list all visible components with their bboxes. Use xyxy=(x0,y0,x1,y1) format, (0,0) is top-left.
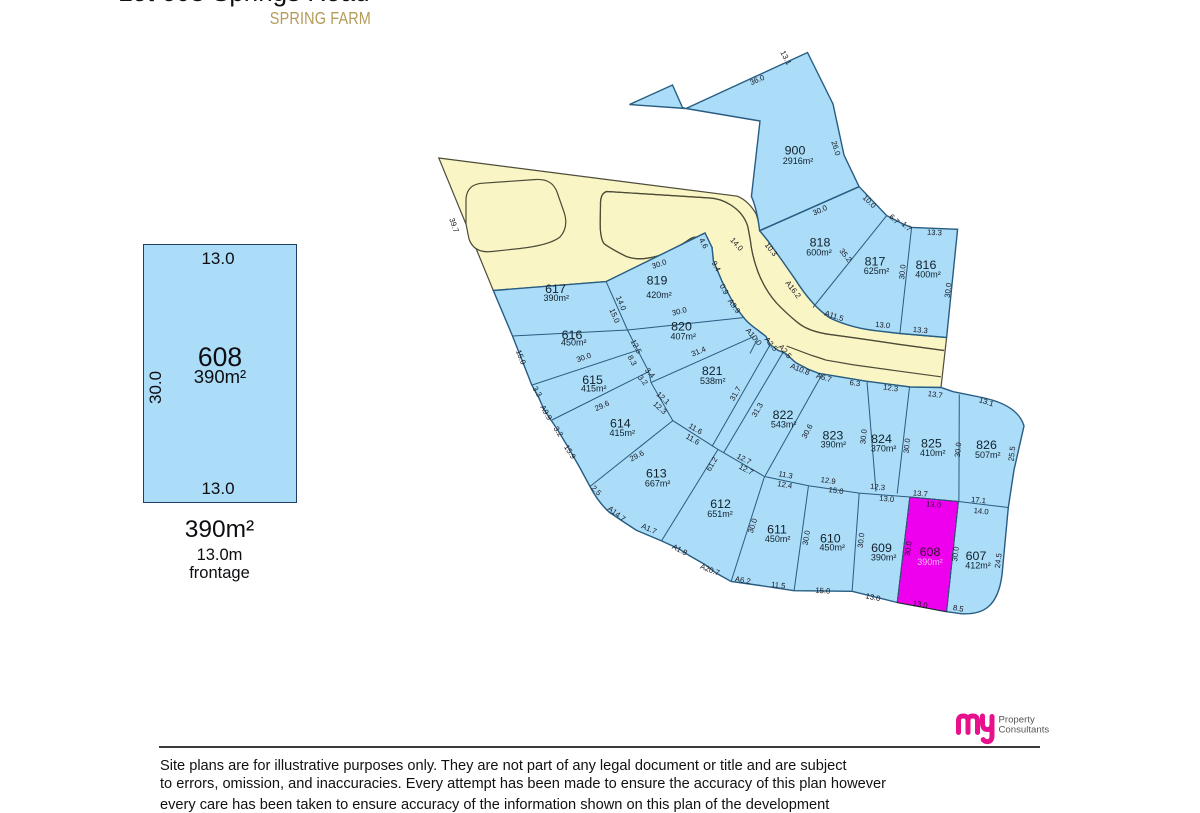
svg-text:625m²: 625m² xyxy=(864,266,890,276)
svg-text:8.5: 8.5 xyxy=(952,603,964,614)
svg-text:30.0: 30.0 xyxy=(897,264,908,280)
svg-text:11.5: 11.5 xyxy=(771,580,786,590)
svg-text:24.5: 24.5 xyxy=(993,553,1004,569)
svg-text:450m²: 450m² xyxy=(819,543,845,553)
svg-text:400m²: 400m² xyxy=(915,270,941,280)
svg-text:30.0: 30.0 xyxy=(858,429,869,445)
svg-text:543m²: 543m² xyxy=(771,420,797,430)
svg-text:450m²: 450m² xyxy=(561,338,587,348)
svg-text:390m²: 390m² xyxy=(871,553,897,563)
svg-text:407m²: 407m² xyxy=(671,332,697,342)
svg-text:2916m²: 2916m² xyxy=(783,156,814,166)
svg-text:12.3: 12.3 xyxy=(870,482,886,493)
svg-text:667m²: 667m² xyxy=(645,479,671,489)
svg-text:14.0: 14.0 xyxy=(973,506,989,516)
svg-text:450m²: 450m² xyxy=(765,534,791,544)
svg-text:819: 819 xyxy=(647,274,668,288)
svg-text:13.0: 13.0 xyxy=(926,499,942,509)
svg-text:6.3: 6.3 xyxy=(849,378,861,388)
svg-text:410m²: 410m² xyxy=(920,448,946,458)
svg-text:30.0: 30.0 xyxy=(953,442,964,458)
svg-text:30.0: 30.0 xyxy=(943,282,954,298)
svg-text:415m²: 415m² xyxy=(609,428,635,438)
svg-text:390m²: 390m² xyxy=(917,557,943,567)
svg-text:538m²: 538m² xyxy=(700,376,726,386)
svg-text:651m²: 651m² xyxy=(707,509,733,519)
svg-text:A6.2: A6.2 xyxy=(734,574,751,586)
svg-text:39.7: 39.7 xyxy=(447,217,461,234)
svg-text:30.0: 30.0 xyxy=(902,438,913,454)
svg-text:600m²: 600m² xyxy=(806,248,832,258)
svg-text:30.0: 30.0 xyxy=(856,532,867,548)
svg-text:Consultants: Consultants xyxy=(999,725,1050,736)
svg-text:13.3: 13.3 xyxy=(927,228,942,238)
svg-text:25.5: 25.5 xyxy=(1007,446,1018,462)
svg-text:390m²: 390m² xyxy=(543,293,569,303)
svg-text:420m²: 420m² xyxy=(646,290,672,300)
svg-text:13.0: 13.0 xyxy=(879,494,895,505)
svg-text:15.0: 15.0 xyxy=(815,586,831,596)
svg-text:412m²: 412m² xyxy=(965,561,991,571)
svg-text:13.3: 13.3 xyxy=(912,325,928,335)
svg-text:390m²: 390m² xyxy=(821,440,847,450)
svg-text:30.0: 30.0 xyxy=(950,546,961,562)
svg-text:13.7: 13.7 xyxy=(912,488,928,498)
svg-text:17.1: 17.1 xyxy=(971,495,987,505)
svg-text:30.0: 30.0 xyxy=(903,541,914,557)
svg-text:507m²: 507m² xyxy=(975,450,1001,460)
svg-text:13.0: 13.0 xyxy=(865,591,882,603)
svg-text:370m²: 370m² xyxy=(871,444,897,454)
svg-text:13.0: 13.0 xyxy=(875,320,891,330)
svg-text:415m²: 415m² xyxy=(581,384,607,394)
svg-text:13.0: 13.0 xyxy=(912,599,928,610)
